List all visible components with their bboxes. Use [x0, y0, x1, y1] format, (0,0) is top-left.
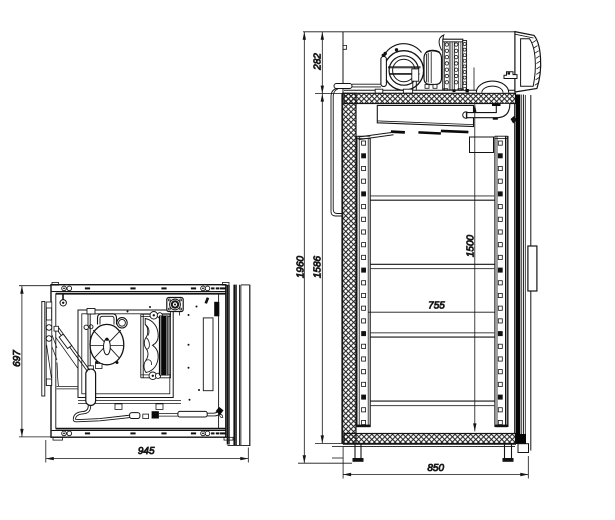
svg-text:850: 850: [427, 463, 444, 474]
svg-text:282: 282: [313, 53, 324, 71]
svg-text:1960: 1960: [295, 255, 306, 278]
svg-text:755: 755: [428, 301, 445, 312]
svg-text:945: 945: [138, 446, 155, 457]
svg-text:1500: 1500: [466, 234, 477, 257]
svg-text:697: 697: [12, 350, 23, 367]
svg-text:1586: 1586: [313, 255, 324, 278]
